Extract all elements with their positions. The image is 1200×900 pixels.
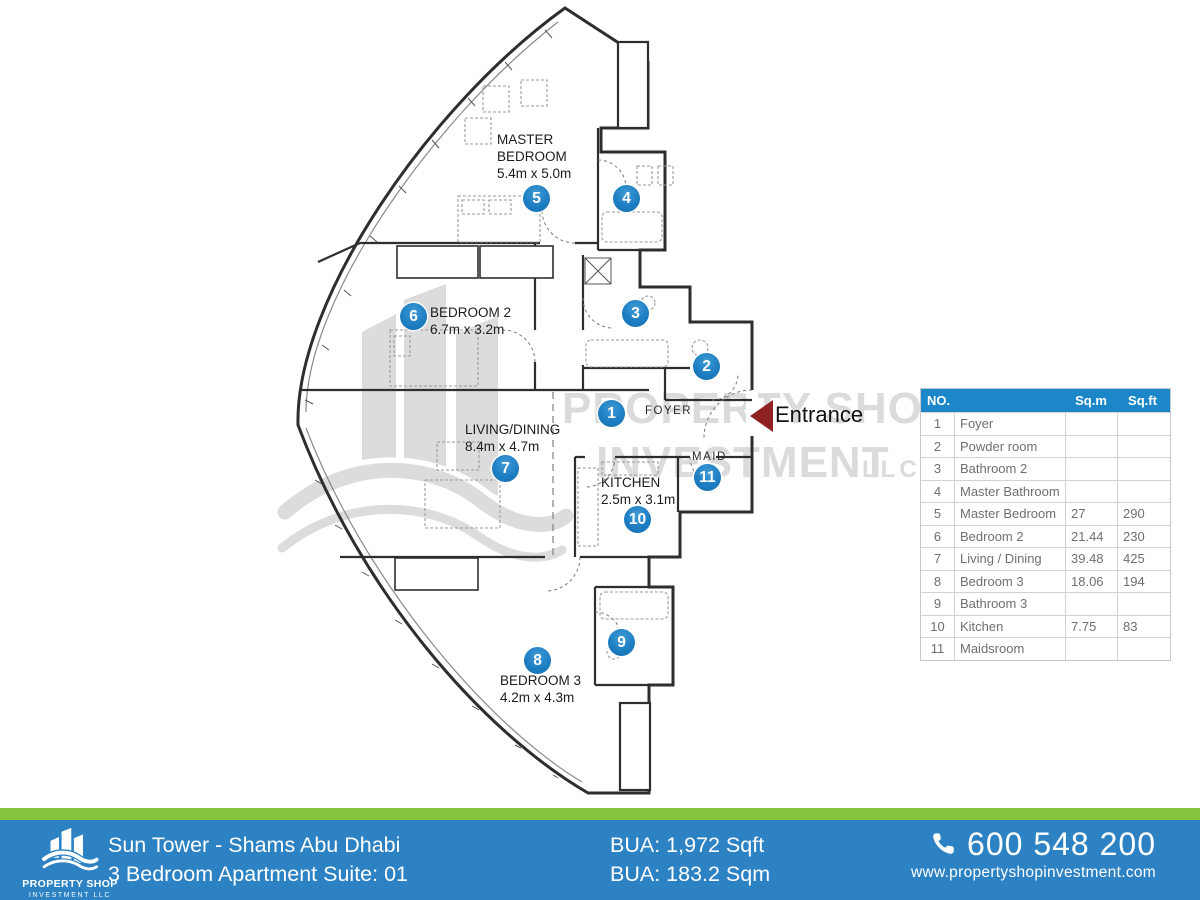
table-row: 4Master Bathroom bbox=[921, 480, 1170, 503]
phone-number: 600 548 200 bbox=[967, 826, 1156, 863]
row-sqft: 425 bbox=[1117, 548, 1168, 570]
label-master-bedroom: MASTER BEDROOM 5.4m x 5.0m bbox=[497, 131, 571, 182]
table-row: 7Living / Dining39.48425 bbox=[921, 547, 1170, 570]
property-titles: Sun Tower - Shams Abu Dhabi 3 Bedroom Ap… bbox=[108, 831, 408, 889]
unit-type: 3 Bedroom Apartment Suite: 01 bbox=[108, 860, 408, 889]
row-name: Master Bathroom bbox=[954, 481, 1065, 503]
watermark-suffix: LLC bbox=[862, 456, 921, 483]
col-header-sqft: Sq.ft bbox=[1117, 389, 1168, 412]
marker-10-kitchen: 10 bbox=[624, 506, 651, 533]
row-no: 5 bbox=[921, 503, 954, 525]
footer: PROPERTY SHOP INVESTMENT LLC Sun Tower -… bbox=[0, 808, 1200, 900]
label-text: BEDROOM 3 bbox=[500, 672, 581, 689]
table-row: 11Maidsroom bbox=[921, 637, 1170, 660]
row-name: Master Bedroom bbox=[954, 503, 1065, 525]
label-bedroom-3: BEDROOM 3 4.2m x 4.3m bbox=[500, 672, 581, 706]
row-sqm: 27 bbox=[1065, 503, 1117, 525]
row-sqft: 290 bbox=[1117, 503, 1168, 525]
table-row: 10Kitchen7.7583 bbox=[921, 615, 1170, 638]
marker-5-master-bedroom: 5 bbox=[523, 185, 550, 212]
row-name: Bathroom 2 bbox=[954, 458, 1065, 480]
company-logo: PROPERTY SHOP INVESTMENT LLC bbox=[22, 824, 118, 899]
row-name: Foyer bbox=[954, 413, 1065, 435]
row-no: 9 bbox=[921, 593, 954, 615]
phone-icon bbox=[930, 831, 957, 858]
entrance-label: Entrance bbox=[775, 402, 863, 428]
table-row: 2Powder room bbox=[921, 435, 1170, 458]
shower bbox=[585, 258, 611, 284]
bua-sqm: BUA: 183.2 Sqm bbox=[610, 860, 770, 889]
label-bedroom-2: BEDROOM 2 6.7m x 3.2m bbox=[430, 304, 511, 338]
label-foyer: FOYER bbox=[645, 405, 692, 417]
label-dims: 8.4m x 4.7m bbox=[465, 438, 560, 455]
row-no: 2 bbox=[921, 436, 954, 458]
label-dims: 6.7m x 3.2m bbox=[430, 321, 511, 338]
table-row: 6Bedroom 221.44230 bbox=[921, 525, 1170, 548]
company-logo-subtitle: INVESTMENT LLC bbox=[22, 892, 118, 899]
table-row: 9Bathroom 3 bbox=[921, 592, 1170, 615]
row-sqft bbox=[1117, 638, 1168, 660]
footer-green-stripe bbox=[0, 808, 1200, 820]
table-row: 3Bathroom 2 bbox=[921, 457, 1170, 480]
table-row: 8Bedroom 318.06194 bbox=[921, 570, 1170, 593]
row-sqm bbox=[1065, 458, 1117, 480]
row-sqm bbox=[1065, 436, 1117, 458]
label-text: BEDROOM 2 bbox=[430, 304, 511, 321]
label-text: MASTER bbox=[497, 131, 571, 148]
row-name: Maidsroom bbox=[954, 638, 1065, 660]
col-header-no: NO. bbox=[921, 389, 954, 412]
row-sqm: 7.75 bbox=[1065, 616, 1117, 638]
project-name: Sun Tower - Shams Abu Dhabi bbox=[108, 831, 408, 860]
label-dims: 4.2m x 4.3m bbox=[500, 689, 581, 706]
table-row: 1Foyer bbox=[921, 412, 1170, 435]
bua-info: BUA: 1,972 Sqft BUA: 183.2 Sqm bbox=[610, 831, 770, 889]
row-no: 8 bbox=[921, 571, 954, 593]
col-header-name bbox=[954, 389, 1065, 412]
marker-2-powder-room: 2 bbox=[693, 353, 720, 380]
row-sqm bbox=[1065, 481, 1117, 503]
row-sqm: 39.48 bbox=[1065, 548, 1117, 570]
table-header-row: NO. Sq.m Sq.ft bbox=[921, 389, 1170, 412]
row-no: 7 bbox=[921, 548, 954, 570]
row-sqm bbox=[1065, 593, 1117, 615]
footer-bar: PROPERTY SHOP INVESTMENT LLC Sun Tower -… bbox=[0, 820, 1200, 900]
row-name: Bedroom 2 bbox=[954, 526, 1065, 548]
row-sqm bbox=[1065, 413, 1117, 435]
row-name: Powder room bbox=[954, 436, 1065, 458]
row-sqft bbox=[1117, 481, 1168, 503]
label-dims: 5.4m x 5.0m bbox=[497, 165, 571, 182]
marker-4-master-bathroom: 4 bbox=[613, 185, 640, 212]
row-no: 11 bbox=[921, 638, 954, 660]
row-sqft bbox=[1117, 593, 1168, 615]
label-text: BEDROOM bbox=[497, 148, 571, 165]
marker-9-bathroom-3: 9 bbox=[608, 629, 635, 656]
row-name: Kitchen bbox=[954, 616, 1065, 638]
company-logo-name: PROPERTY SHOP bbox=[22, 878, 118, 890]
marker-1-foyer: 1 bbox=[598, 400, 625, 427]
row-name: Living / Dining bbox=[954, 548, 1065, 570]
row-sqft: 230 bbox=[1117, 526, 1168, 548]
row-sqft bbox=[1117, 458, 1168, 480]
row-sqft: 194 bbox=[1117, 571, 1168, 593]
row-sqft bbox=[1117, 436, 1168, 458]
website-url: www.propertyshopinvestment.com bbox=[911, 864, 1156, 882]
row-name: Bathroom 3 bbox=[954, 593, 1065, 615]
contact-info: 600 548 200 www.propertyshopinvestment.c… bbox=[911, 826, 1156, 882]
table-row: 5Master Bedroom27290 bbox=[921, 502, 1170, 525]
marker-7-living-dining: 7 bbox=[492, 455, 519, 482]
row-sqm: 21.44 bbox=[1065, 526, 1117, 548]
marker-3-bathroom-2: 3 bbox=[622, 300, 649, 327]
col-header-sqm: Sq.m bbox=[1065, 389, 1117, 412]
phone-row: 600 548 200 bbox=[911, 826, 1156, 863]
company-logo-icon bbox=[37, 824, 103, 872]
row-sqft bbox=[1117, 413, 1168, 435]
row-sqft: 83 bbox=[1117, 616, 1168, 638]
floorplan-canvas: PROPERTY SHOP INVESTMENT LLC bbox=[0, 0, 1200, 808]
marker-11-maid: 11 bbox=[694, 464, 721, 491]
marker-6-bedroom-2: 6 bbox=[400, 303, 427, 330]
marker-8-bedroom-3: 8 bbox=[524, 647, 551, 674]
row-no: 6 bbox=[921, 526, 954, 548]
label-living-dining: LIVING/DINING 8.4m x 4.7m bbox=[465, 421, 560, 455]
label-text: KITCHEN bbox=[601, 474, 675, 491]
row-sqm: 18.06 bbox=[1065, 571, 1117, 593]
label-kitchen: KITCHEN 2.5m x 3.1m bbox=[601, 474, 675, 508]
row-no: 4 bbox=[921, 481, 954, 503]
label-maid: MAID bbox=[692, 451, 727, 463]
row-no: 3 bbox=[921, 458, 954, 480]
row-sqm bbox=[1065, 638, 1117, 660]
room-area-table: NO. Sq.m Sq.ft 1Foyer2Powder room3Bathro… bbox=[920, 388, 1171, 661]
row-name: Bedroom 3 bbox=[954, 571, 1065, 593]
bua-sqft: BUA: 1,972 Sqft bbox=[610, 831, 770, 860]
row-no: 1 bbox=[921, 413, 954, 435]
floorplan-brochure: { "plan": { "entrance_label": "Entrance"… bbox=[0, 0, 1200, 900]
row-no: 10 bbox=[921, 616, 954, 638]
label-text: LIVING/DINING bbox=[465, 421, 560, 438]
